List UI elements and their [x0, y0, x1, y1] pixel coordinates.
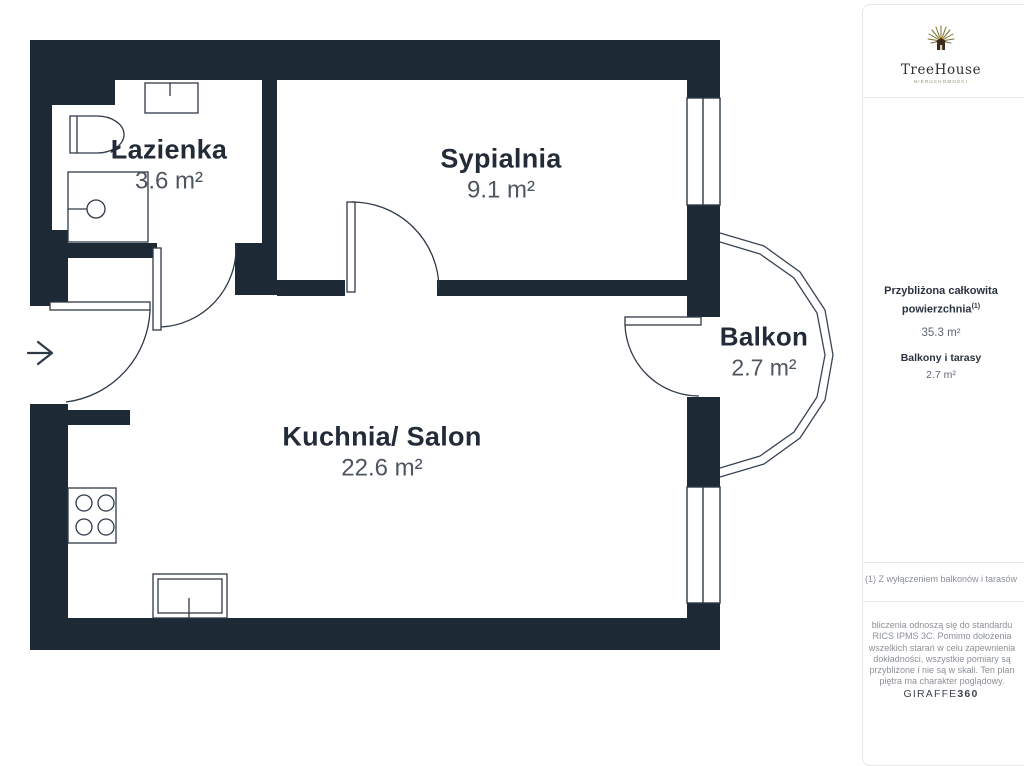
- door-entrance: [50, 302, 150, 402]
- footnote-marker: (1): [972, 303, 981, 310]
- divider: [863, 601, 1024, 602]
- sidebar-panel: TreeHouse NIERUCHOMOŚCI Przybliżona całk…: [858, 0, 1024, 724]
- floor-plan-drawing: [0, 0, 858, 724]
- door-bedroom: [347, 202, 439, 292]
- window-livingroom: [687, 487, 720, 603]
- toilet-icon: [70, 116, 124, 153]
- total-area-value: 35.3 m²: [858, 327, 1024, 339]
- walls: [30, 40, 720, 650]
- footnote-text: (1) Z wyłączeniem balkonów i tarasów: [858, 574, 1024, 584]
- door-balcony: [625, 317, 701, 396]
- agency-tagline: NIERUCHOMOŚCI: [858, 79, 1024, 84]
- washbasin-icon: [145, 83, 198, 113]
- divider: [863, 97, 1024, 98]
- stove-icon: [68, 488, 116, 543]
- balcony-area-value: 2.7 m²: [858, 369, 1024, 381]
- balcony-railing: [720, 233, 833, 477]
- door-bathroom: [153, 246, 236, 330]
- area-summary: Przybliżona całkowita powierzchnia(1) 35…: [858, 284, 1024, 381]
- entrance-arrow-icon: [28, 342, 52, 364]
- floor-plan: Łazienka 3.6 m² Sypialnia 9.1 m² Kuchnia…: [0, 0, 858, 724]
- giraffe360-name: GIRAFFE: [903, 688, 957, 700]
- total-area-label-text: Przybliżona całkowita powierzchnia: [884, 285, 998, 316]
- shower-icon: [68, 172, 148, 242]
- tree-logo-icon: [921, 22, 961, 56]
- agency-brand-name: TreeHouse: [858, 62, 1024, 78]
- giraffe360-logo: GIRAFFE360: [858, 688, 1024, 700]
- agency-logo: TreeHouse NIERUCHOMOŚCI: [858, 22, 1024, 84]
- divider: [863, 562, 1024, 563]
- window-bedroom: [687, 98, 720, 205]
- giraffe360-suffix: 360: [957, 688, 978, 700]
- balcony-area-label: Balkony i tarasy: [858, 352, 1024, 364]
- total-area-label: Przybliżona całkowita powierzchnia(1): [879, 284, 1003, 318]
- disclaimer-text: bliczenia odnoszą się do standardu RICS …: [866, 620, 1018, 688]
- kitchen-sink-icon: [153, 574, 227, 618]
